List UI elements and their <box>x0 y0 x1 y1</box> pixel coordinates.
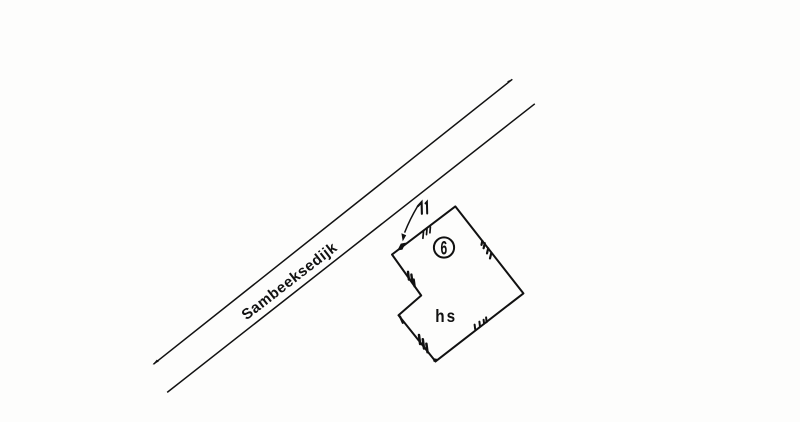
svg-text:6: 6 <box>441 237 448 259</box>
svg-text:Sambeeksedijk: Sambeeksedijk <box>239 239 341 324</box>
svg-text:hs: hs <box>435 306 457 326</box>
